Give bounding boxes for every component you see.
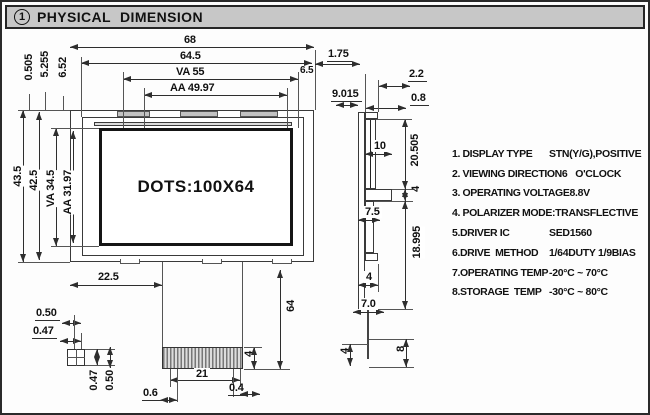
extension-line <box>378 264 379 292</box>
page-title: PHYSICAL DIMENSION <box>37 9 203 25</box>
dim-line-4-mid <box>405 189 406 201</box>
dim-line-64 <box>280 270 281 369</box>
dim-label-18-995: 18.995 <box>409 226 425 258</box>
extension-line <box>45 92 46 110</box>
dim-label-7-5: 7.5 <box>363 206 382 218</box>
spec-label: 3. OPERATING VOLTAGE <box>452 187 569 199</box>
dim-line-8 <box>406 339 407 367</box>
dim-label-4-connector: 4 <box>243 351 255 357</box>
dim-line-0-50-top <box>62 323 81 324</box>
extension-line <box>342 344 368 345</box>
dim-label-0-6: 0.6 <box>142 387 161 401</box>
extension-line <box>81 333 82 349</box>
side-view-flex-tail <box>367 309 369 359</box>
display-resolution-label: DOTS:100X64 <box>99 128 293 246</box>
extension-line <box>18 262 70 263</box>
dim-label-8: 8 <box>395 346 407 352</box>
spec-label: 5.DRIVER IC <box>452 227 549 239</box>
dim-line-20-505 <box>405 119 406 189</box>
dim-line-0-8 <box>366 108 406 109</box>
extension-line <box>170 369 171 387</box>
spec-row-drive-method: 6.DRIVE METHOD 1/64DUTY 1/9BIAS <box>452 243 644 263</box>
pin-detail-cross-line <box>67 357 85 358</box>
dim-line-0-50-rot <box>110 347 111 368</box>
dim-label-43-5: 43.5 <box>10 166 26 187</box>
extension-line <box>298 72 299 128</box>
dim-label-20-505: 20.505 <box>409 134 421 166</box>
extension-line <box>244 369 290 370</box>
dim-label-aa4997: AA 49.97 <box>170 82 214 94</box>
dim-label-4-tab: 4 <box>364 271 374 283</box>
frame-tab <box>180 111 218 117</box>
spec-list: 1. DISPLAY TYPE STN(Y/G),POSITIVE 2. VIE… <box>452 144 644 302</box>
frame-tab <box>240 111 278 117</box>
spec-value: 1/64DUTY 1/9BIAS <box>549 247 636 259</box>
dim-line-22-5 <box>70 285 162 286</box>
dim-label-aa31-97: AA 31.97 <box>60 170 76 214</box>
extension-line <box>315 50 316 110</box>
spec-row-viewing-direction: 2. VIEWING DIRECTION 6 O'CLOCK <box>452 164 644 184</box>
spec-value: SED1560 <box>549 227 592 239</box>
dim-label-5-255: 5.255 <box>39 51 51 78</box>
extension-line <box>74 315 75 349</box>
dim-line-4-tab <box>358 285 378 286</box>
dim-line-va55 <box>123 79 298 80</box>
dim-label-64: 64 <box>285 300 297 312</box>
dim-label-va34-5: VA 34.5 <box>43 170 59 207</box>
dim-label-0-47-rot: 0.47 <box>88 370 100 391</box>
dim-label-68: 68 <box>184 34 196 46</box>
extension-line <box>369 367 414 368</box>
dim-line-aa4997 <box>144 95 287 96</box>
dim-label-10: 10 <box>372 140 388 152</box>
dim-label-0-8: 0.8 <box>410 92 429 106</box>
dim-label-64-5: 64.5 <box>180 50 201 62</box>
extension-line <box>51 128 99 129</box>
extension-line <box>365 74 366 112</box>
extension-line <box>18 110 70 111</box>
connector-side-line <box>242 262 243 347</box>
dim-label-42-5: 42.5 <box>26 170 42 191</box>
dim-label-9-015: 9.015 <box>331 88 362 102</box>
spec-label: 1. DISPLAY TYPE <box>452 148 549 160</box>
side-view-top-tab <box>365 112 378 119</box>
dim-line-0-4 <box>240 394 260 395</box>
spec-row-operating-voltage: 3. OPERATING VOLTAGE 8.8V <box>452 184 644 204</box>
spec-value: TRANSFLECTIVE <box>555 207 638 219</box>
side-view-mid-step <box>365 189 392 201</box>
dim-line-2-2 <box>379 86 410 87</box>
dim-label-4-mid: 4 <box>410 186 422 192</box>
extension-line <box>287 88 288 128</box>
spec-label: 7.OPERATING TEMP <box>452 267 549 279</box>
extension-line <box>144 88 145 128</box>
pcb-notch <box>202 259 222 264</box>
spec-row-driver-ic: 5.DRIVER IC SED1560 <box>452 223 644 243</box>
extension-line <box>376 119 412 120</box>
dim-line-1-75 <box>315 64 360 65</box>
dim-line-9-015 <box>336 105 358 106</box>
frame-tab <box>117 111 150 117</box>
dim-line-68 <box>70 47 314 48</box>
drawing-sheet: 1 PHYSICAL DIMENSION DOTS:100X64 68 64.5… <box>0 0 650 415</box>
spec-row-display-type: 1. DISPLAY TYPE STN(Y/G),POSITIVE <box>452 144 644 164</box>
spec-row-operating-temp: 7.OPERATING TEMP -20°C ~ 70°C <box>452 263 644 283</box>
spec-row-polarizer-mode: 4. POLARIZER MODE: TRANSFLECTIVE <box>452 203 644 223</box>
title-bar: 1 PHYSICAL DIMENSION <box>5 5 645 29</box>
dim-line-21 <box>170 380 240 381</box>
side-view-bottom-tab <box>365 253 378 261</box>
dim-line-64-5 <box>81 63 312 64</box>
extension-line <box>378 80 379 112</box>
dim-label-7-0: 7.0 <box>359 298 378 310</box>
dim-line-10 <box>365 154 392 155</box>
dim-label-4-flex: 4 <box>339 348 351 354</box>
heat-seal-connector <box>162 347 243 369</box>
dim-label-0-50-rot: 0.50 <box>104 370 116 391</box>
spec-value: -30°C ~ 80°C <box>549 286 608 298</box>
pcb-notch <box>120 259 140 264</box>
spec-row-storage-temp: 8.STORAGE TEMP -30°C ~ 80°C <box>452 283 644 303</box>
dim-label-0-505: 0.505 <box>23 54 35 81</box>
extension-line <box>244 347 262 348</box>
dim-label-21: 21 <box>194 368 210 380</box>
spec-value: -20°C ~ 70°C <box>549 267 608 279</box>
dim-line-0-47-top <box>60 341 81 342</box>
dim-line-7-0 <box>353 312 384 313</box>
spec-label: 6.DRIVE METHOD <box>452 247 549 259</box>
dim-line-0-6 <box>160 400 177 401</box>
connector-side-line <box>162 262 163 347</box>
spec-label: 4. POLARIZER MODE: <box>452 207 555 219</box>
spec-value: STN(Y/G),POSITIVE <box>549 148 641 160</box>
extension-line <box>123 72 124 128</box>
spec-label: 2. VIEWING DIRECTION <box>452 168 562 180</box>
dim-label-6-5: 6.5 <box>300 65 313 76</box>
extension-line <box>81 57 82 117</box>
spec-label: 8.STORAGE TEMP <box>452 286 549 298</box>
extension-line <box>29 94 30 110</box>
spec-value: 6 O'CLOCK <box>562 168 621 180</box>
spec-value: 8.8V <box>569 187 589 199</box>
extension-line <box>63 96 64 110</box>
dim-label-2-2: 2.2 <box>408 68 427 82</box>
dim-label-0-50-top: 0.50 <box>35 307 60 321</box>
section-number-icon: 1 <box>14 9 30 25</box>
dim-line-0-47-rot <box>97 349 98 365</box>
dim-label-22-5: 22.5 <box>98 271 119 283</box>
dim-label-1-75: 1.75 <box>327 48 352 62</box>
pcb-notch <box>272 259 292 264</box>
dim-label-6-52: 6.52 <box>57 57 69 78</box>
dim-label-0-47-top: 0.47 <box>32 325 57 339</box>
extension-line <box>177 369 178 402</box>
dim-line-18-995 <box>405 201 406 309</box>
extension-line <box>51 246 99 247</box>
dim-label-va55: VA 55 <box>176 66 204 78</box>
dim-line-7-5 <box>358 220 380 221</box>
